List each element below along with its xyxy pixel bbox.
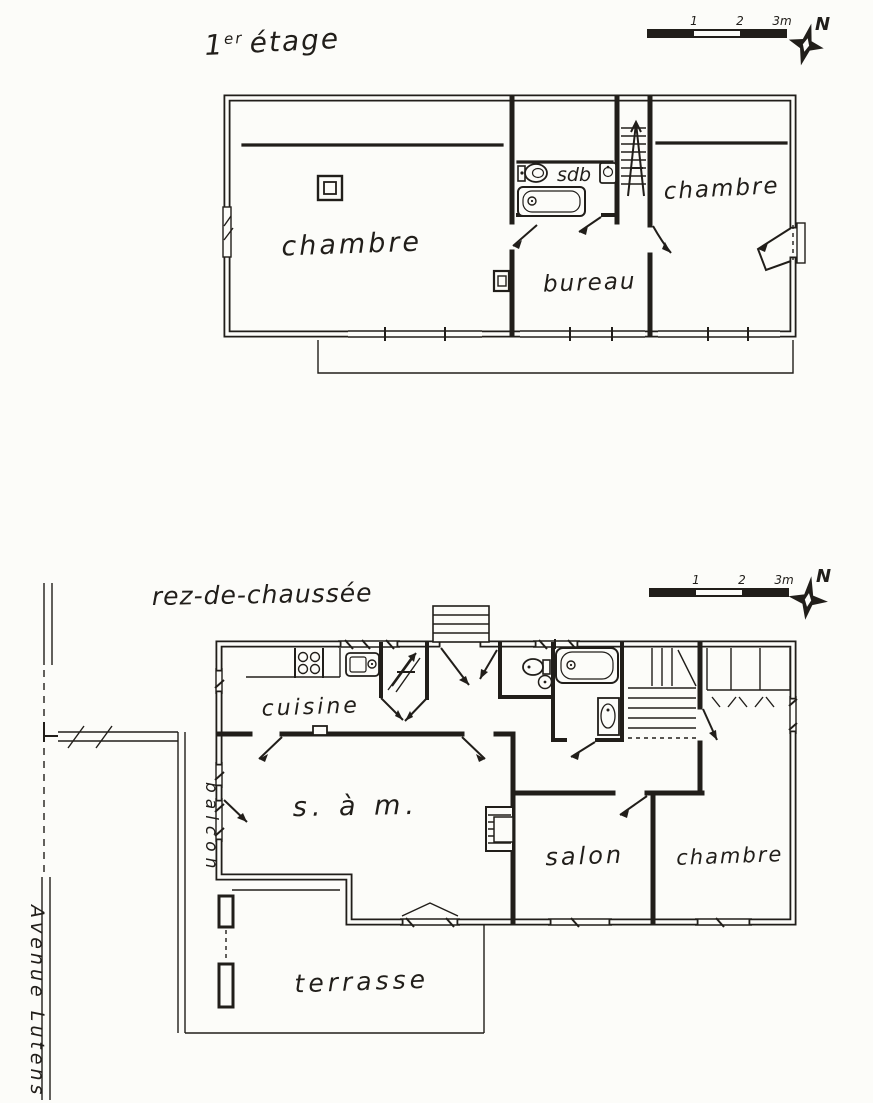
floor1-scale-tick-3: 3m <box>772 14 791 28</box>
bathroom-tub-icon <box>556 648 618 683</box>
floor1-bathtub-icon <box>518 187 585 216</box>
garden-gate-path <box>58 726 178 748</box>
wardrobe-icon <box>707 648 790 707</box>
bathroom-door-swing <box>571 742 595 760</box>
floor1-stairs-icon <box>617 98 650 225</box>
floor1-chimney-bureau <box>494 271 509 291</box>
main-stairs-icon <box>628 648 696 738</box>
floor0-compass-n-label: N <box>816 566 831 587</box>
floor1-title-sup: er <box>224 29 244 48</box>
floor0-room-label-salon: salon <box>545 841 625 872</box>
floor1-scale-tick-2: 2 <box>736 14 744 28</box>
basement-stairs-icon <box>381 653 427 721</box>
street-label: Avenue Lutens <box>26 903 48 1098</box>
floor1-scale-tick-1: 1 <box>690 14 698 28</box>
bathroom-sink-icon <box>598 698 619 735</box>
floor1-compass-n-label: N <box>815 14 830 35</box>
floor0-plan: rez-de-chaussée 1 2 3m N Avenue Lutens <box>26 566 831 1100</box>
floor0-scale-tick-1: 1 <box>692 573 700 587</box>
stove-icon <box>295 648 323 678</box>
kitchen-sink-icon <box>346 653 379 676</box>
balcony-walls <box>178 732 233 1033</box>
floor1-title-number: 1 <box>204 28 226 62</box>
hall-door-swings <box>441 648 497 685</box>
floor0-scale-tick-2: 2 <box>738 573 746 587</box>
floor1-toilet-icon <box>518 164 547 182</box>
floor0-room-label-terrasse: terrasse <box>294 965 429 999</box>
floor0-title: rez-de-chaussée <box>152 578 373 611</box>
floor1-sink-icon <box>600 163 616 183</box>
floor1-room-label-chambre-right: chambre <box>663 173 780 205</box>
wc-toilet-icon <box>523 659 552 689</box>
floor0-room-label-sam: s. à m. <box>292 790 419 823</box>
floor1-south-windows <box>348 327 780 341</box>
floor1-chimney-chambre <box>318 176 342 200</box>
floor1-room-label-bureau: bureau <box>543 268 637 297</box>
floor1-room-label-chambre-left: chambre <box>281 227 423 263</box>
floor0-scale-bar: 1 2 3m <box>650 573 794 596</box>
floorplan-drawing: 1erétage 1 2 3m N <box>0 0 873 1103</box>
front-steps <box>433 606 489 642</box>
floor0-scale-tick-3: 3m <box>774 573 793 587</box>
kitchen-counter <box>246 648 340 677</box>
floorplan-page: 1erétage 1 2 3m N <box>0 0 873 1103</box>
floor1-title-word: étage <box>249 22 341 60</box>
floor1-west-window <box>223 207 233 257</box>
floor1-east-door <box>758 223 805 270</box>
fireplace-icon <box>486 807 513 851</box>
floor1-room-label-sdb: sdb <box>557 164 591 186</box>
floor0-windows <box>215 639 797 927</box>
floor1-scale-bar: 1 2 3m <box>648 14 792 37</box>
floor0-room-label-cuisine: cuisine <box>261 693 360 721</box>
floor0-room-label-chambre: chambre <box>676 842 784 870</box>
floor1-door-swings <box>513 217 671 253</box>
floor1-south-band <box>318 340 793 373</box>
floor1-plan: 1erétage 1 2 3m N <box>204 14 830 373</box>
floor1-title: 1erétage <box>204 22 341 62</box>
